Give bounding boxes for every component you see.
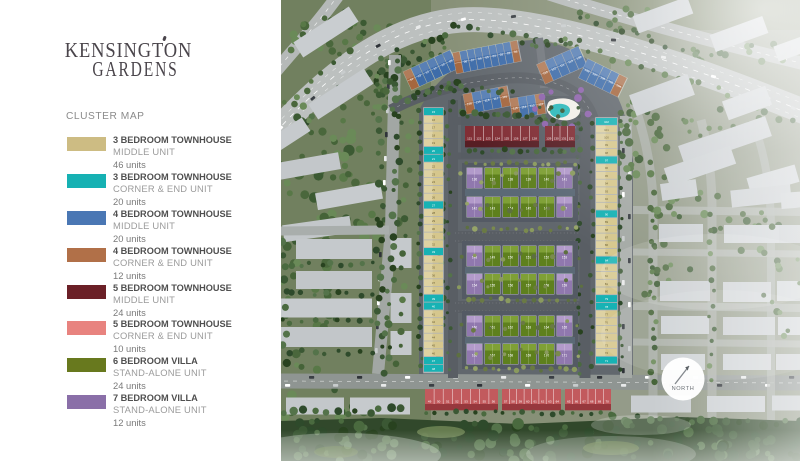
svg-text:NORTH: NORTH bbox=[672, 386, 695, 392]
